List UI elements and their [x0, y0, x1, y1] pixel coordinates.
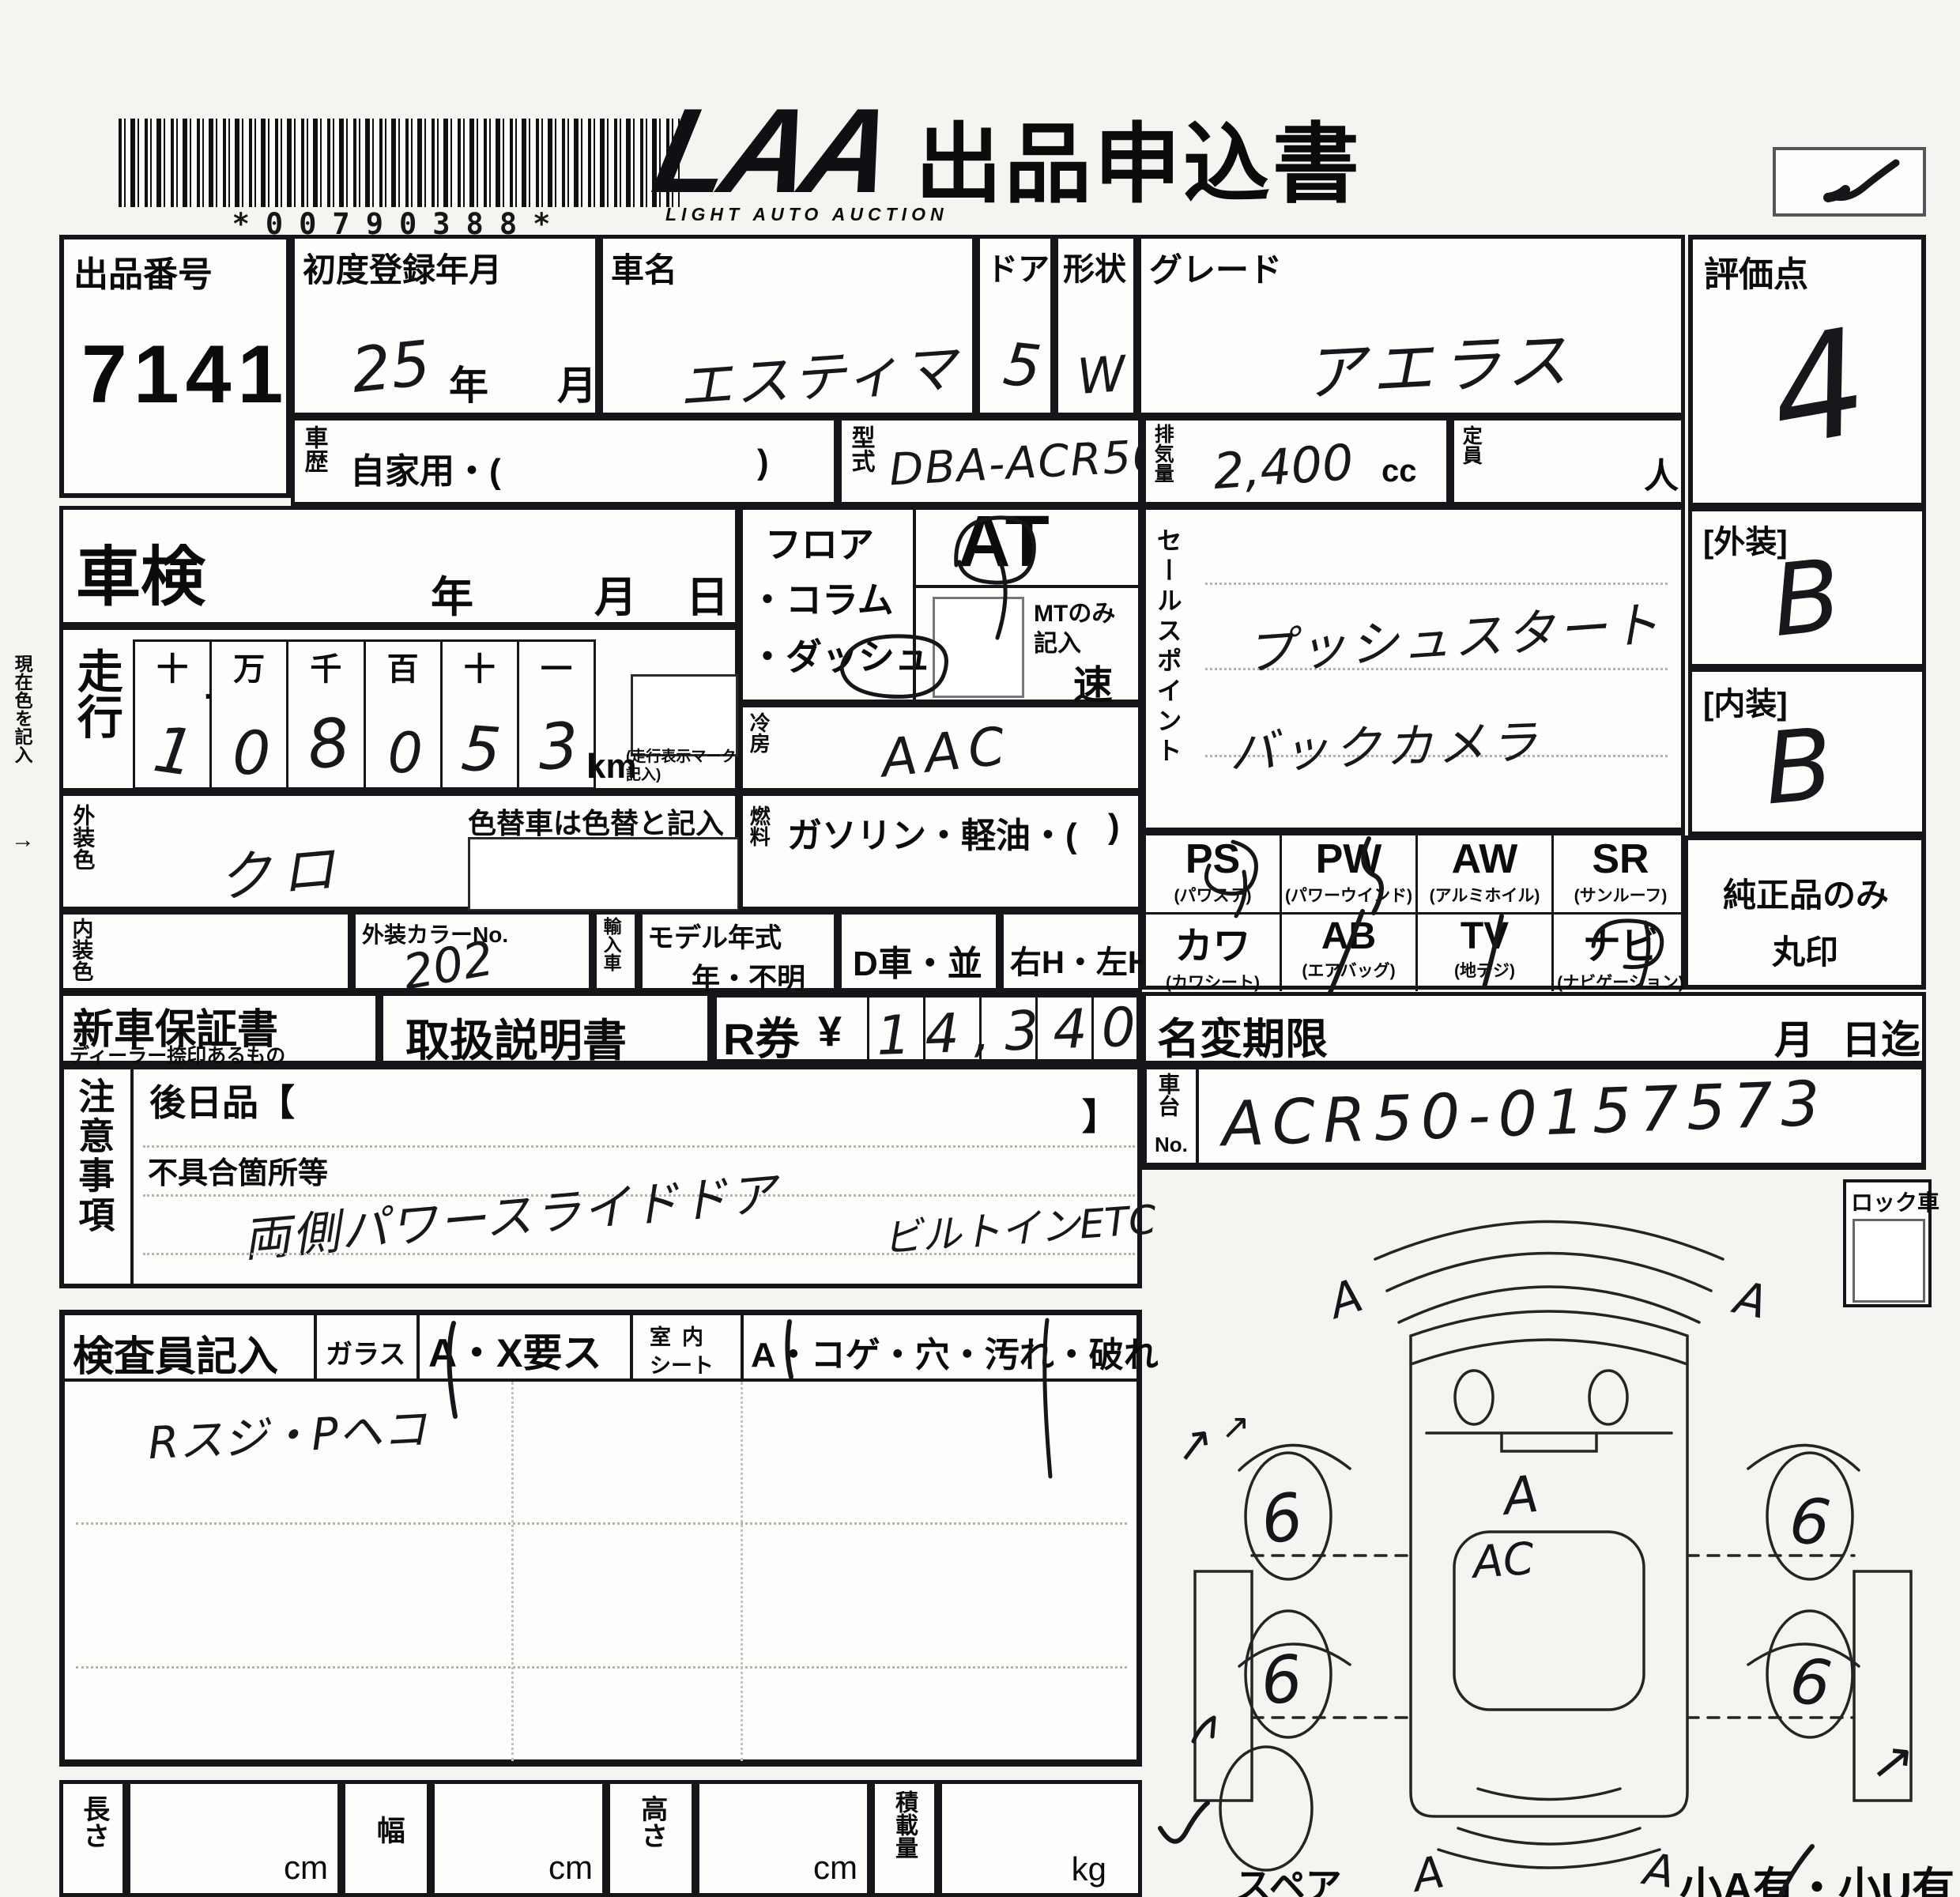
name-change-month: 月: [1774, 1009, 1814, 1065]
color-no-box: 外装カラーNo. 202: [352, 911, 593, 992]
displacement-box: 排気量 2,400 cc: [1142, 417, 1450, 506]
odometer-grid: 十 1 万 0 千 8 百 0 十 5 一 3: [133, 639, 596, 790]
equip-aw: AW (アルミホイル): [1418, 835, 1554, 915]
equip-name: (サンルーフ): [1554, 883, 1687, 907]
corner-checkbox: [1773, 147, 1926, 217]
shaken-day: 日: [686, 562, 729, 624]
interior-grade-box: [内装] B: [1688, 668, 1926, 835]
equip-code: SR: [1554, 835, 1687, 883]
grade-value: アエラス: [1301, 311, 1576, 413]
odometer-header: 万: [212, 642, 286, 689]
odometer-cell: 一 3: [519, 642, 594, 787]
load-field: kg: [938, 1780, 1142, 1897]
glass-label: ガラス: [326, 1333, 405, 1371]
model-year-box: モデル年式 年・不明: [639, 911, 838, 992]
guide-line: [76, 1522, 1127, 1525]
shaken-month: 月: [594, 562, 637, 624]
header-divider: [314, 1315, 317, 1378]
odometer-header: 百: [366, 642, 440, 689]
width-label-box: 幅: [341, 1780, 431, 1897]
odometer-header: 千: [288, 642, 363, 689]
shaken-box: 車検 年 月 日: [59, 506, 739, 626]
displacement-value: 2,400: [1212, 433, 1355, 500]
margin-note-arrow: →: [11, 827, 35, 854]
fuel-box: 燃料 ガソリン・軽油・( ): [739, 792, 1142, 911]
load-unit: kg: [1072, 1850, 1106, 1888]
car-diagram: 6 6 6 6 A A A AC A A ↗ ↗ ↗: [1146, 1160, 1960, 1897]
mileage-label: 走行: [71, 647, 119, 739]
history-close: ): [757, 443, 769, 482]
history-label: 車歴: [301, 425, 326, 473]
handle-label: 右H・左H: [1010, 937, 1151, 982]
odometer-digit: 5: [459, 713, 503, 786]
lot-number: 7141: [81, 328, 289, 422]
mileage-box: 走行 十 1 万 0 千 8 百 0 十 5 一: [59, 626, 739, 792]
equip-navi: ナビ (ナビゲーション): [1554, 915, 1687, 991]
exterior-color-value: クロ: [214, 824, 347, 913]
width-field: cm: [431, 1780, 606, 1897]
guide-line-v: [511, 1382, 514, 1761]
side-arrow-mark: ↗: [1221, 1407, 1250, 1447]
lot-box: 出品番号 7141: [59, 235, 291, 498]
exterior-color-box: 外装色 クロ 色替車は色替と記入: [59, 792, 739, 911]
aircon-label: 冷房: [748, 712, 769, 753]
r-ticket-value: 14,340: [876, 996, 1151, 1068]
odometer-cell: 万 0: [212, 642, 288, 787]
inspector-header: 検査員記入 ガラス A・X要ス 室内 シート A・コゲ・穴・汚れ・破れ: [65, 1315, 1136, 1382]
registration-year-suffix: 年: [449, 354, 488, 411]
name-change-label: 名変期限: [1157, 1004, 1328, 1066]
r-ticket-currency: ¥: [818, 1007, 842, 1056]
laa-logo: LAA: [643, 82, 900, 221]
model-code-label: 型式: [848, 425, 873, 473]
fuel-label: 燃料: [748, 805, 769, 847]
lot-label: 出品番号: [73, 246, 213, 296]
guide-line: [1205, 583, 1668, 585]
chassis-label: 車台: [1156, 1073, 1179, 1117]
name-change-day: 日迄: [1841, 1009, 1920, 1065]
fuel-text: ガソリン・軽油・(: [787, 807, 1077, 858]
mileage-note: (走行表示マーク記入): [626, 749, 744, 785]
car-name-label: 車名: [611, 243, 677, 292]
odometer-cell: 十 5: [443, 642, 519, 787]
chassis-divider: [1196, 1069, 1199, 1165]
exterior-color-label: 外装色: [71, 804, 94, 870]
front-left-mark: A: [1320, 1268, 1370, 1329]
equip-ab: AB (エアバッグ): [1282, 915, 1418, 991]
exterior-grade-box: [外装] B: [1688, 507, 1926, 668]
d-car-box: D車・並: [838, 911, 1000, 992]
fuel-close: ): [1108, 807, 1120, 847]
length-label: 長さ: [79, 1795, 107, 1849]
width-unit: cm: [548, 1849, 593, 1887]
auction-sheet: *00790388* LAA LIGHT AUTO AUCTION 出品申込書 …: [0, 0, 1960, 1897]
length-field: cm: [126, 1780, 341, 1897]
odometer-cell: 十 1: [135, 642, 212, 787]
defect-label: 不具合箇所等: [148, 1148, 328, 1192]
guide-line: [143, 1253, 1135, 1255]
color-change-note: 色替車は色替と記入: [468, 801, 724, 842]
sales-points-label: セールスポイント: [1154, 527, 1181, 767]
grade-label: グレード: [1149, 243, 1282, 292]
shift-line-2: ・コラム: [749, 571, 894, 624]
cautions-label: 注意事項: [75, 1077, 113, 1235]
later-item-close: 】: [1082, 1088, 1118, 1141]
interior-color-box: 内装色: [59, 911, 352, 992]
spare-label: スペア: [1235, 1857, 1342, 1897]
car-name-box: 車名 エスティマ: [599, 235, 976, 417]
interior-grade-value: B: [1760, 707, 1837, 828]
aircon-box: 冷房 AAC: [739, 703, 1142, 792]
front-right-mark: A: [1727, 1269, 1772, 1329]
equip-ps: PS (パワステ): [1146, 835, 1282, 915]
cautions-box: 注意事項 後日品【 】 不具合箇所等 両側パワースライドドア ビルトインETC: [59, 1065, 1142, 1288]
score-box: 評価点 4: [1688, 235, 1926, 507]
height-unit: cm: [813, 1849, 857, 1887]
center-mark: AC: [1468, 1533, 1536, 1589]
warranty-box: 新車保証書 ディーラー捺印あるもの: [59, 992, 379, 1065]
grade-box: グレード アエラス: [1137, 235, 1685, 417]
exterior-grade-value: B: [1767, 538, 1846, 659]
form-title: 出品申込書: [915, 93, 1362, 220]
d-car-label: D車・並: [853, 935, 982, 986]
navi-circle-mark: [1570, 907, 1680, 994]
r-ticket-box: R券 ¥ 14,340: [711, 992, 1142, 1065]
odometer-digit: 8: [303, 703, 353, 784]
inspector-note: Rスジ・Pヘコ: [146, 1394, 428, 1472]
odometer-decimal-dot: .: [204, 671, 213, 707]
damage-stroke-marks: [741, 1315, 1148, 1481]
registration-value: 25: [349, 328, 434, 407]
height-label: 高さ: [637, 1795, 665, 1849]
model-code-box: 型式 DBA-ACR50W: [838, 417, 1142, 506]
genuine-note-2: 丸印: [1772, 926, 1838, 974]
odometer-digit: 0: [388, 721, 424, 786]
inspector-label: 検査員記入: [73, 1323, 278, 1382]
sales-points-box: セールスポイント プッシュスタート バックカメラ: [1142, 506, 1685, 832]
history-box: 車歴 自家用・( ): [291, 417, 838, 506]
odometer-digit: 0: [232, 718, 270, 788]
at-circle-mark: [933, 510, 1146, 684]
name-change-box: 名変期限 月 日迄: [1142, 992, 1926, 1065]
color-change-box: [468, 837, 740, 911]
score-value: 4: [1758, 296, 1879, 480]
later-item-label: 後日品【: [149, 1074, 295, 1126]
capacity-box: 定員 人: [1450, 417, 1685, 506]
history-text: 自家用・(: [350, 443, 501, 493]
inspector-box: 検査員記入 ガラス A・X要ス 室内 シート A・コゲ・穴・汚れ・破れ Rスジ・…: [59, 1310, 1142, 1767]
odometer-header: 十: [443, 642, 517, 689]
equip-kawa: カワ (カワシート): [1146, 915, 1282, 991]
capacity-unit: 人: [1644, 447, 1679, 498]
guide-line: [143, 1145, 1135, 1148]
score-label: 評価点: [1704, 246, 1808, 296]
header-divider: [416, 1315, 420, 1378]
equip-name: (カワシート): [1146, 970, 1280, 994]
header-divider: [630, 1315, 633, 1378]
import-car-label: 輸入車: [601, 917, 620, 971]
ax-stroke-mark: [430, 1318, 485, 1437]
capacity-label: 定員: [1461, 425, 1481, 465]
chassis-label-no: No.: [1155, 1133, 1188, 1157]
footer-slash-mark: [1766, 1842, 1837, 1897]
shape-box: 形状 W: [1054, 235, 1137, 417]
import-car-box: 輸入車: [593, 911, 639, 992]
chassis-box: 車台 No. ACR50-0157573: [1142, 1065, 1926, 1170]
odometer-header: 十: [135, 642, 209, 689]
corner-check-mark: [1776, 150, 1923, 213]
length-unit: cm: [284, 1849, 328, 1887]
equip-code: AW: [1418, 835, 1551, 883]
shape-value: W: [1076, 345, 1128, 405]
laa-logo-sub: LIGHT AUTO AUCTION: [665, 204, 948, 225]
width-label: 幅: [374, 1816, 404, 1844]
odometer-cell: 百 0: [366, 642, 443, 787]
shift-line-1: フロア: [765, 516, 874, 568]
ab-slash-mark: [1306, 910, 1400, 1005]
seat-label-2: シート: [650, 1348, 714, 1379]
length-label-box: 長さ: [59, 1780, 126, 1897]
equip-pw: PW (パワーウインド): [1282, 835, 1418, 915]
equip-sr: SR (サンルーフ): [1554, 835, 1687, 915]
equipment-grid: PS (パワステ) PW (パワーウインド) AW (アルミホイル) SR (サ…: [1142, 832, 1685, 990]
height-label-box: 高さ: [606, 1780, 695, 1897]
chassis-value: ACR50-0157573: [1221, 1069, 1829, 1161]
genuine-note-1: 純正品のみ: [1723, 869, 1889, 917]
r-ticket-label: R券: [723, 1004, 799, 1068]
odometer-header: 一: [519, 642, 594, 689]
displacement-unit: cc: [1381, 454, 1417, 489]
wheel-mark: 6: [1257, 1642, 1305, 1720]
aircon-value: AAC: [878, 715, 1016, 790]
registration-box: 初度登録年月 25 年 月: [291, 235, 599, 417]
load-label-box: 積載量: [871, 1780, 938, 1897]
model-year-label: モデル年式: [647, 916, 782, 955]
interior-color-label: 内装色: [70, 918, 92, 982]
wheel-mark: 6: [1257, 1479, 1308, 1559]
hood-mark: A: [1498, 1465, 1541, 1528]
load-label: 積載量: [892, 1790, 916, 1859]
r-cell-divider: [867, 998, 869, 1059]
tv-slash-mark: [1449, 913, 1544, 1000]
registration-month-suffix: 月: [557, 354, 597, 411]
equip-code: カワ: [1146, 915, 1280, 970]
sales-point-2: バックカメラ: [1228, 703, 1543, 783]
side-arrow-mark: ↗: [1868, 1729, 1917, 1793]
guide-line-v: [741, 1382, 743, 1761]
door-box: ドア 5: [976, 235, 1054, 417]
side-arrow-mark: ↗: [1171, 1415, 1217, 1473]
manual-box: 取扱説明書: [379, 992, 711, 1065]
cautions-divider: [130, 1069, 134, 1284]
odometer-cell: 千 8: [288, 642, 365, 787]
guide-line: [76, 1666, 1127, 1669]
margin-note: 現在色を記入: [13, 654, 32, 764]
equip-name: (アルミホイル): [1418, 883, 1551, 907]
barcode: [119, 119, 680, 207]
wheel-mark: 6: [1785, 1643, 1835, 1722]
shape-label: 形状: [1063, 243, 1126, 289]
door-label: ドア: [986, 243, 1050, 289]
rear-right-mark: A: [1638, 1843, 1678, 1897]
transmission-box: フロア ・コラム ・ダッシュ AT MTのみ 記入 速: [739, 506, 1142, 703]
displacement-label: 排気量: [1152, 424, 1173, 483]
shaken-label: 車検: [76, 524, 205, 618]
genuine-note-box: 純正品のみ 丸印: [1683, 835, 1926, 990]
shaken-year: 年: [431, 562, 473, 624]
odometer-digit: 3: [536, 709, 580, 785]
manual-label: 取扱説明書: [405, 1005, 627, 1069]
ps-circle-mark: [1185, 837, 1280, 924]
mileage-mark-box: [631, 674, 738, 756]
handle-box: 右H・左H: [1000, 911, 1142, 992]
model-year-value: 年・不明: [692, 956, 805, 997]
equip-tv: TV (地デジ): [1418, 915, 1554, 991]
odometer-digit: 1: [149, 712, 199, 790]
car-name-value: エスティマ: [676, 324, 962, 422]
wheel-mark: 6: [1786, 1483, 1834, 1560]
rear-left-mark: A: [1407, 1846, 1448, 1897]
door-value: 5: [1001, 330, 1045, 402]
seat-label-1: 室内: [650, 1320, 714, 1351]
registration-label: 初度登録年月: [303, 243, 502, 292]
height-field: cm: [695, 1780, 871, 1897]
